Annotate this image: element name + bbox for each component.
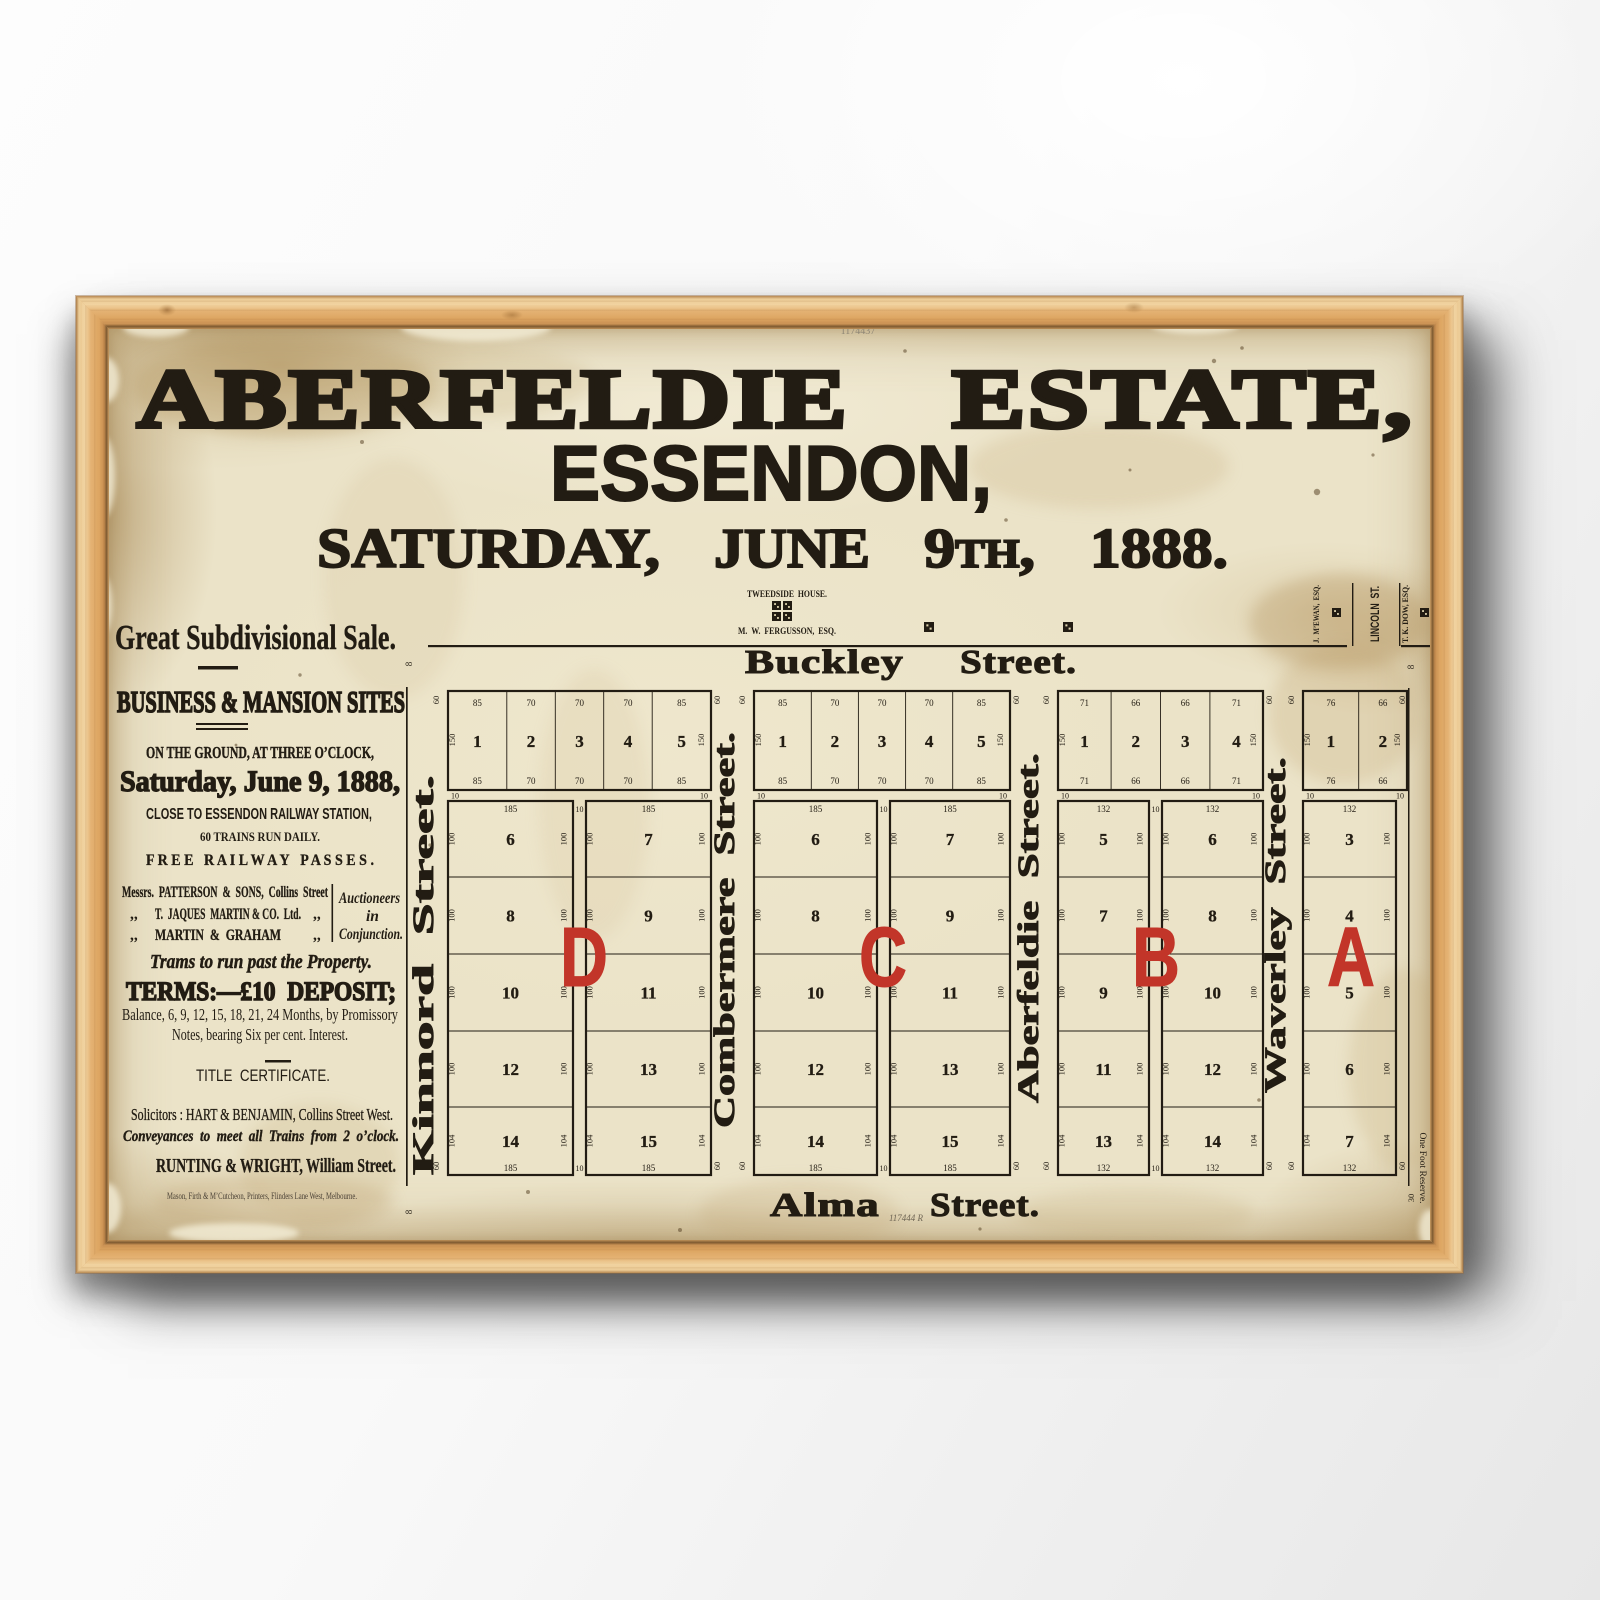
svg-text:100: 100 [753,833,763,846]
svg-text:85: 85 [778,698,788,708]
svg-text:150: 150 [1302,734,1312,747]
svg-text:70: 70 [878,776,888,786]
svg-text:Saturday, June 9, 1888,: Saturday, June 9, 1888, [120,765,400,798]
svg-text:60: 60 [431,1162,441,1171]
svg-text:60: 60 [737,696,747,705]
svg-text:60: 60 [1397,1162,1407,1171]
svg-text:60: 60 [1286,1162,1296,1171]
svg-text:100: 100 [889,833,899,846]
svg-text:100: 100 [1382,986,1392,999]
svg-text:70: 70 [527,776,537,786]
svg-text:150: 150 [995,734,1005,747]
svg-text:85: 85 [977,776,987,786]
svg-text:100: 100 [1161,1063,1171,1076]
svg-text:104: 104 [1057,1134,1067,1148]
svg-text:132: 132 [1097,1163,1111,1173]
svg-text:60: 60 [712,696,722,705]
svg-text:CLOSE TO ESSENDON RAILWAY STAT: CLOSE TO ESSENDON RAILWAY STATION, [146,806,372,823]
svg-text:185: 185 [809,1163,823,1173]
svg-text:85: 85 [977,698,987,708]
svg-text:7: 7 [1099,907,1108,926]
svg-text:Balance, 6, 9, 12, 15, 18, 21,: Balance, 6, 9, 12, 15, 18, 21, 24 Months… [122,1005,399,1024]
svg-text:71: 71 [1232,698,1241,708]
svg-text:D: D [560,910,608,1004]
svg-text:100: 100 [996,986,1006,999]
svg-text:100: 100 [1302,909,1312,922]
svg-text:150: 150 [1392,734,1402,747]
svg-text:132: 132 [1206,1163,1220,1173]
svg-text:7: 7 [946,830,955,849]
svg-text:13: 13 [1095,1132,1112,1151]
svg-text:F R E E R A I L W A Y P A: F R E E R A I L W A Y P A S S E S . [146,852,374,869]
svg-text:14: 14 [807,1132,825,1151]
svg-text:66: 66 [1378,776,1388,786]
svg-text:60: 60 [712,1162,722,1171]
svg-text:13: 13 [942,1060,959,1079]
svg-text:104: 104 [996,1134,1006,1148]
svg-text:8: 8 [506,907,515,926]
svg-text:1888.: 1888. [1090,518,1228,580]
svg-text:66: 66 [1181,776,1191,786]
svg-text:100: 100 [753,986,763,999]
svg-text:104: 104 [889,1134,899,1148]
svg-text:3: 3 [575,732,584,751]
svg-text:132: 132 [1343,1163,1357,1173]
svg-text:70: 70 [527,698,537,708]
svg-text:8: 8 [404,661,414,666]
svg-text:30: 30 [1406,1194,1416,1203]
svg-text:10: 10 [880,1164,888,1173]
svg-text:in: in [366,908,379,925]
svg-text:ESSENDON,: ESSENDON, [550,429,992,517]
svg-text:2: 2 [1379,732,1388,751]
svg-text:85: 85 [677,698,687,708]
svg-text:150: 150 [696,734,706,747]
svg-text:100: 100 [697,833,707,846]
svg-text:5: 5 [977,732,986,751]
svg-text:Solicitors : HART & BENJAMIN,: Solicitors : HART & BENJAMIN, Collins St… [131,1105,393,1124]
svg-text:60: 60 [1397,696,1407,705]
svg-text:100: 100 [1382,833,1392,846]
svg-text:1174437: 1174437 [841,329,876,337]
svg-text:100: 100 [697,1063,707,1076]
svg-text:76: 76 [1326,776,1336,786]
svg-text:ON THE GROUND, AT THREE O’CLOC: ON THE GROUND, AT THREE O’CLOCK, [146,743,374,762]
svg-text:100: 100 [447,1063,457,1076]
svg-text:70: 70 [830,698,840,708]
svg-text:4: 4 [1232,732,1241,751]
svg-text:60: 60 [737,1162,747,1171]
svg-text:100: 100 [753,1063,763,1076]
svg-text:104: 104 [863,1134,873,1148]
svg-text:100: 100 [585,833,595,846]
svg-text:150: 150 [447,734,457,747]
svg-text:13: 13 [640,1060,657,1079]
svg-text:10: 10 [576,805,584,814]
svg-text:132: 132 [1206,804,1220,814]
svg-text:70: 70 [925,698,935,708]
svg-text:1: 1 [778,732,787,751]
svg-text:100: 100 [559,1063,569,1076]
svg-text:70: 70 [575,776,585,786]
svg-text:185: 185 [943,1163,957,1173]
svg-text:100: 100 [996,909,1006,922]
svg-text:60: 60 [1286,696,1296,705]
svg-text:TITLE CERTIFICATE.: TITLE CERTIFICATE. [196,1066,330,1085]
svg-text:66: 66 [1181,698,1191,708]
svg-text:85: 85 [473,776,483,786]
svg-text:Aberfeldie Street.: Aberfeldie Street. [1012,753,1045,1103]
svg-text:185: 185 [809,804,823,814]
svg-text:Street.: Street. [960,644,1077,681]
svg-text:100: 100 [1135,833,1145,846]
svg-text:Messrs. PATTERSON & SONS,: Messrs. PATTERSON & SONS, Collins Street [122,884,329,901]
svg-text:100: 100 [447,909,457,922]
svg-text:100: 100 [753,909,763,922]
svg-text:85: 85 [677,776,687,786]
svg-text:100: 100 [1302,833,1312,846]
svg-text:C: C [859,910,907,1004]
svg-text:5: 5 [677,732,686,751]
svg-text:10: 10 [700,792,708,801]
svg-text:100: 100 [1161,833,1171,846]
svg-text:2: 2 [1132,732,1141,751]
svg-text:10: 10 [1061,792,1069,801]
svg-text:14: 14 [1204,1132,1222,1151]
svg-text:Notes, bearing Six per cent. I: Notes, bearing Six per cent. Interest. [172,1025,348,1044]
svg-text:100: 100 [996,1063,1006,1076]
svg-text:1: 1 [473,732,482,751]
svg-text:12: 12 [1204,1060,1221,1079]
svg-text:185: 185 [642,1163,656,1173]
svg-text:3: 3 [1345,830,1354,849]
svg-text:Buckley: Buckley [745,644,904,681]
svg-text:8: 8 [811,907,820,926]
svg-text:100: 100 [996,833,1006,846]
svg-text:132: 132 [1097,804,1111,814]
svg-text:10: 10 [451,792,459,801]
svg-text:5: 5 [1099,830,1108,849]
svg-text:T. JAQUES MARTIN & CO. Ltd.: T. JAQUES MARTIN & CO. Ltd. [155,906,301,923]
svg-text:70: 70 [623,698,633,708]
svg-text:132: 132 [1343,804,1357,814]
svg-text:11: 11 [1095,1060,1111,1079]
svg-text:66: 66 [1131,698,1141,708]
svg-text:104: 104 [1302,1134,1312,1148]
svg-text:10: 10 [1152,1164,1160,1173]
svg-text:10: 10 [757,792,765,801]
svg-text:100: 100 [697,909,707,922]
svg-text:100: 100 [697,986,707,999]
svg-text:60: 60 [1264,1162,1274,1171]
svg-text:8: 8 [1406,664,1416,669]
svg-text:6: 6 [1208,830,1217,849]
svg-text:10: 10 [1252,792,1260,801]
svg-text:ESTATE,: ESTATE, [952,353,1414,446]
svg-text:15: 15 [640,1132,657,1151]
svg-text:LINCOLN ST.: LINCOLN ST. [1368,586,1382,642]
svg-text:11: 11 [942,984,958,1003]
svg-text:60: 60 [1011,696,1021,705]
svg-text:10: 10 [1396,792,1404,801]
svg-text:70: 70 [623,776,633,786]
svg-text:SATURDAY,: SATURDAY, [317,518,660,580]
svg-text:A: A [1327,910,1375,1004]
svg-text:85: 85 [778,776,788,786]
svg-text:100: 100 [447,833,457,846]
svg-text:9: 9 [1099,984,1108,1003]
svg-text:Conjunction.: Conjunction. [339,926,403,943]
svg-text:100: 100 [863,1063,873,1076]
svg-text:185: 185 [504,804,518,814]
svg-text:2: 2 [831,732,840,751]
svg-text:15: 15 [942,1132,959,1151]
svg-text:70: 70 [878,698,888,708]
svg-text:6: 6 [506,830,515,849]
svg-text:3: 3 [1181,732,1190,751]
svg-text:10: 10 [1152,805,1160,814]
svg-text:10: 10 [1204,984,1221,1003]
svg-text:6: 6 [811,830,820,849]
svg-text:Auctioneers: Auctioneers [338,890,400,907]
svg-text:70: 70 [575,698,585,708]
svg-text:150: 150 [1057,734,1067,747]
svg-text:1: 1 [1327,732,1336,751]
svg-text:12: 12 [807,1060,824,1079]
svg-text:104: 104 [585,1134,595,1148]
svg-text:60: 60 [1011,1162,1021,1171]
svg-text:104: 104 [447,1134,457,1148]
svg-text:10: 10 [807,984,824,1003]
svg-text:100: 100 [1382,1063,1392,1076]
svg-text:4: 4 [624,732,633,751]
svg-text:J. M’EWAN, ESQ.: J. M’EWAN, ESQ. [1311,585,1321,643]
svg-text:100: 100 [1249,909,1259,922]
svg-text:T. K. DOW, ESQ.: T. K. DOW, ESQ. [1400,585,1410,643]
svg-text:8: 8 [1208,907,1217,926]
svg-text:100: 100 [585,1063,595,1076]
svg-text:BUSINESS & MANSION SITES: BUSINESS & MANSION SITES [117,684,405,719]
svg-text:100: 100 [889,1063,899,1076]
svg-text:60: 60 [1041,1162,1051,1171]
svg-text:100: 100 [1302,1063,1312,1076]
svg-text:70: 70 [925,776,935,786]
svg-text:Mason, Firth & M’Cutcheon, Pri: Mason, Firth & M’Cutcheon, Printers, Fli… [167,1192,357,1202]
svg-text:100: 100 [447,986,457,999]
svg-text:6: 6 [1345,1060,1354,1079]
svg-text:14: 14 [502,1132,520,1151]
svg-text:2: 2 [527,732,536,751]
svg-text:1: 1 [1080,732,1089,751]
svg-text:MARTIN & GRAHAM: MARTIN & GRAHAM [155,927,281,944]
svg-text:100: 100 [1249,986,1259,999]
svg-text:104: 104 [1161,1134,1171,1148]
svg-text:,,: ,, [313,906,321,923]
svg-text:104: 104 [1135,1134,1145,1148]
svg-text:60: 60 [1264,696,1274,705]
svg-text:,,: ,, [313,927,321,944]
svg-text:Trams to run past the Property: Trams to run past the Property. [150,952,372,973]
svg-text:One Foot Reserve.: One Foot Reserve. [1417,1133,1427,1204]
svg-text:150: 150 [1248,734,1258,747]
svg-text:70: 70 [830,776,840,786]
svg-text:185: 185 [943,804,957,814]
svg-text:100: 100 [1057,833,1067,846]
svg-text:12: 12 [502,1060,519,1079]
svg-text:Great Subdivisional Sale.: Great Subdivisional Sale. [115,618,396,657]
svg-text:100: 100 [1382,909,1392,922]
svg-text:85: 85 [473,698,483,708]
svg-text:10: 10 [1306,792,1314,801]
svg-text:Alma: Alma [770,1187,880,1224]
svg-text:11: 11 [640,984,656,1003]
svg-text:Combermere Street.: Combermere Street. [708,732,741,1128]
svg-text:,,: ,, [130,906,138,923]
svg-text:71: 71 [1232,776,1241,786]
svg-text:9TH,: 9TH, [924,518,1035,580]
svg-text:7: 7 [1345,1132,1354,1151]
svg-text:3: 3 [878,732,887,751]
svg-text:TERMS:—£10 DEPOSIT;: TERMS:—£10 DEPOSIT; [126,977,396,1006]
svg-text:104: 104 [1249,1134,1259,1148]
svg-text:7: 7 [644,830,653,849]
svg-text:100: 100 [1057,986,1067,999]
svg-text:,,: ,, [130,927,138,944]
svg-text:100: 100 [1249,833,1259,846]
svg-text:104: 104 [559,1134,569,1148]
svg-text:10: 10 [999,792,1007,801]
svg-text:60 TRAINS RUN DAILY.: 60 TRAINS RUN DAILY. [200,830,320,844]
svg-text:Kinnord Street.: Kinnord Street. [407,775,440,1175]
svg-text:104: 104 [1382,1134,1392,1148]
svg-text:8: 8 [404,1209,414,1214]
svg-text:RUNTING & WRIGHT, William Stre: RUNTING & WRIGHT, William Street. [156,1156,396,1177]
svg-text:100: 100 [1249,1063,1259,1076]
svg-text:71: 71 [1080,698,1089,708]
svg-text:B: B [1132,910,1180,1004]
svg-text:60: 60 [1041,696,1051,705]
svg-text:4: 4 [925,732,934,751]
svg-text:9: 9 [946,907,955,926]
svg-text:150: 150 [753,734,763,747]
svg-text:71: 71 [1080,776,1089,786]
svg-text:117444 R: 117444 R [889,1213,924,1223]
svg-text:10: 10 [576,1164,584,1173]
svg-text:66: 66 [1131,776,1141,786]
svg-text:100: 100 [1302,986,1312,999]
svg-text:185: 185 [642,804,656,814]
svg-text:100: 100 [1135,1063,1145,1076]
svg-text:60: 60 [431,696,441,705]
svg-text:Street.: Street. [930,1187,1040,1224]
svg-text:JUNE: JUNE [714,518,870,580]
svg-text:104: 104 [753,1134,763,1148]
svg-text:100: 100 [559,833,569,846]
svg-text:66: 66 [1378,698,1388,708]
svg-text:76: 76 [1326,698,1336,708]
svg-text:10: 10 [880,805,888,814]
svg-text:185: 185 [504,1163,518,1173]
svg-text:100: 100 [1057,909,1067,922]
svg-text:9: 9 [644,907,653,926]
svg-text:TWEEDSIDE HOUSE.: TWEEDSIDE HOUSE. [747,590,827,600]
svg-text:M. W. FERGUSSON, ESQ.: M. W. FERGUSSON, ESQ. [738,627,836,637]
svg-text:100: 100 [863,833,873,846]
svg-text:100: 100 [1057,1063,1067,1076]
svg-text:10: 10 [502,984,519,1003]
svg-text:Conveyances to meet all Tr: Conveyances to meet all Trains from 2 o’… [123,1128,399,1145]
svg-text:104: 104 [697,1134,707,1148]
